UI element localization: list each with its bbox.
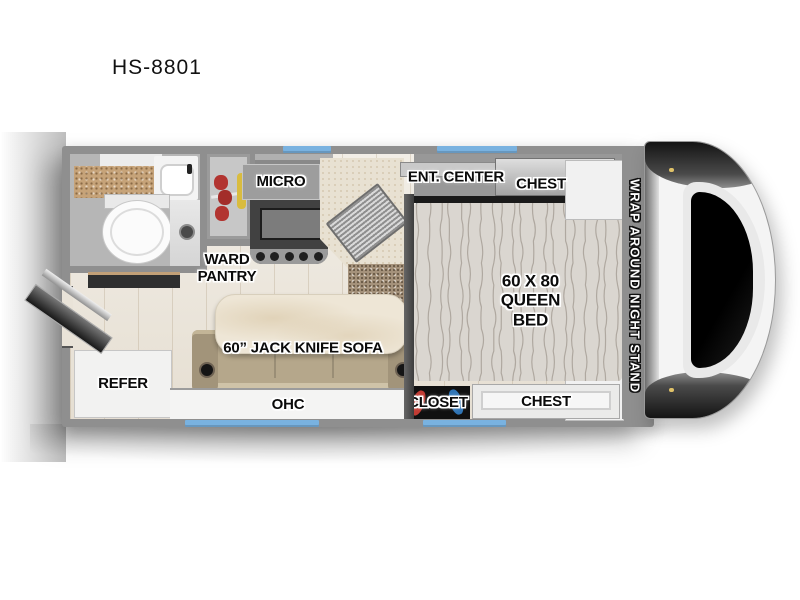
shower	[170, 200, 200, 266]
marker-light-icon	[669, 168, 674, 172]
chest-bottom-cabinet: CHEST	[472, 384, 620, 419]
nightstand-label: WRAP AROUND NIGHT STAND	[628, 179, 643, 393]
model-title: HS-8801	[112, 56, 202, 80]
closet-label: CLOSET	[408, 394, 468, 411]
ward-pantry-label: WARD PANTRY	[198, 251, 257, 286]
floorplan: MICRO REFER	[62, 146, 654, 427]
clothes-icon	[214, 175, 228, 190]
truck-cap-nose	[644, 141, 776, 419]
refrigerator: REFER	[74, 350, 172, 418]
interior-floor: MICRO REFER	[70, 154, 648, 419]
galley-cabinet	[88, 272, 180, 288]
window	[185, 420, 319, 427]
micro-label: MICRO	[257, 173, 306, 190]
floorplan-page: HS-8801	[0, 0, 800, 600]
window	[283, 146, 331, 153]
queen-bed: 60 X 80 QUEEN BED	[414, 203, 622, 381]
microwave-label-box: MICRO	[242, 164, 320, 200]
clothes-icon	[218, 190, 232, 205]
bottom-shadow	[30, 424, 690, 464]
bathroom	[70, 154, 207, 273]
stove-icon	[250, 196, 328, 264]
chest-top-label: CHEST	[516, 175, 566, 192]
cupholder-icon	[199, 362, 215, 378]
sofa-label: 60” JACK KNIFE SOFA	[223, 339, 383, 356]
windshield-frame	[683, 182, 765, 378]
sofa-armrest	[192, 334, 218, 390]
faucet-icon	[187, 164, 192, 174]
bedroom-wall	[404, 194, 414, 419]
refer-label: REFER	[98, 375, 148, 392]
chest-bottom-label: CHEST	[521, 393, 571, 410]
queen-bed-label: 60 X 80 QUEEN BED	[485, 272, 577, 331]
ohc-label: OHC	[272, 396, 305, 413]
overhead-cabinet-band: OHC	[170, 388, 406, 419]
window	[437, 146, 517, 153]
ent-center-label: ENT. CENTER	[408, 168, 504, 185]
window	[423, 420, 506, 427]
shower-drain-icon	[179, 224, 195, 240]
clothes-icon	[215, 206, 229, 221]
marker-light-icon	[669, 388, 674, 392]
closet: CLOSET	[406, 386, 470, 419]
windshield-icon	[691, 192, 753, 368]
nightstand-corner	[565, 160, 624, 220]
toilet-icon	[102, 200, 172, 264]
